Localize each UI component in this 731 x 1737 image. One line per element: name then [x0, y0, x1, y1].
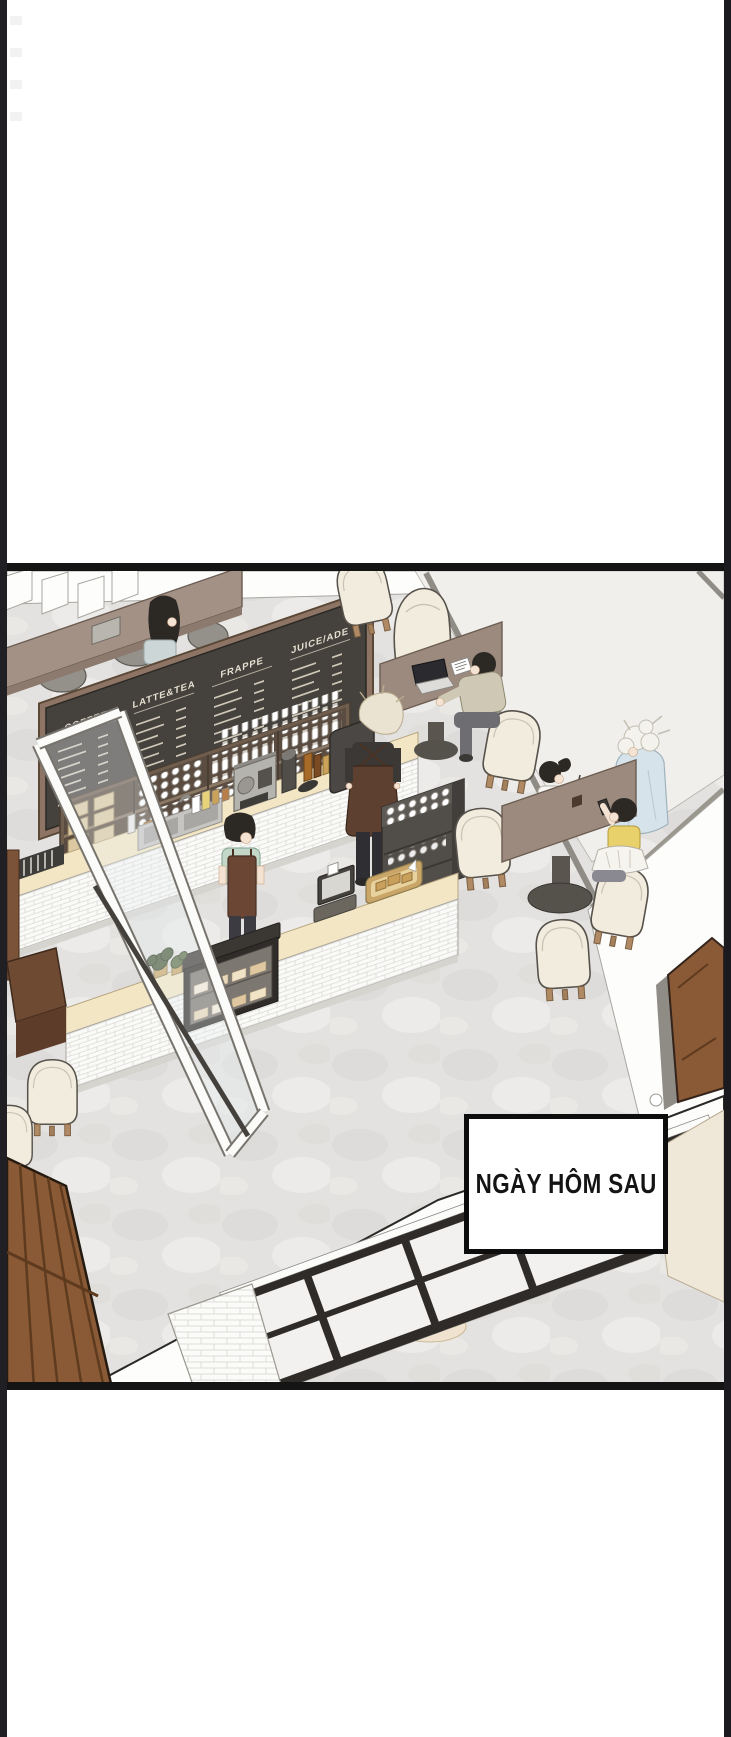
cafe-panel-illustration: COFFEE LATTE&TEA FRAPPE JUICE/ADE — [0, 0, 731, 1737]
page-strip-right — [724, 0, 731, 1737]
coffee-grinder — [282, 747, 296, 793]
cup-on-floor — [650, 1094, 662, 1106]
webtoon-page: COFFEE LATTE&TEA FRAPPE JUICE/ADE — [0, 0, 731, 1737]
page-strip-left — [0, 0, 7, 1737]
customer-communal-table — [144, 595, 180, 664]
panel-border-top — [0, 563, 731, 571]
caption-box: NGÀY HÔM SAU — [464, 1114, 668, 1254]
panel-border-bottom — [0, 1382, 731, 1390]
caption-text: NGÀY HÔM SAU — [475, 1168, 656, 1200]
margin-artifacts — [10, 16, 22, 121]
